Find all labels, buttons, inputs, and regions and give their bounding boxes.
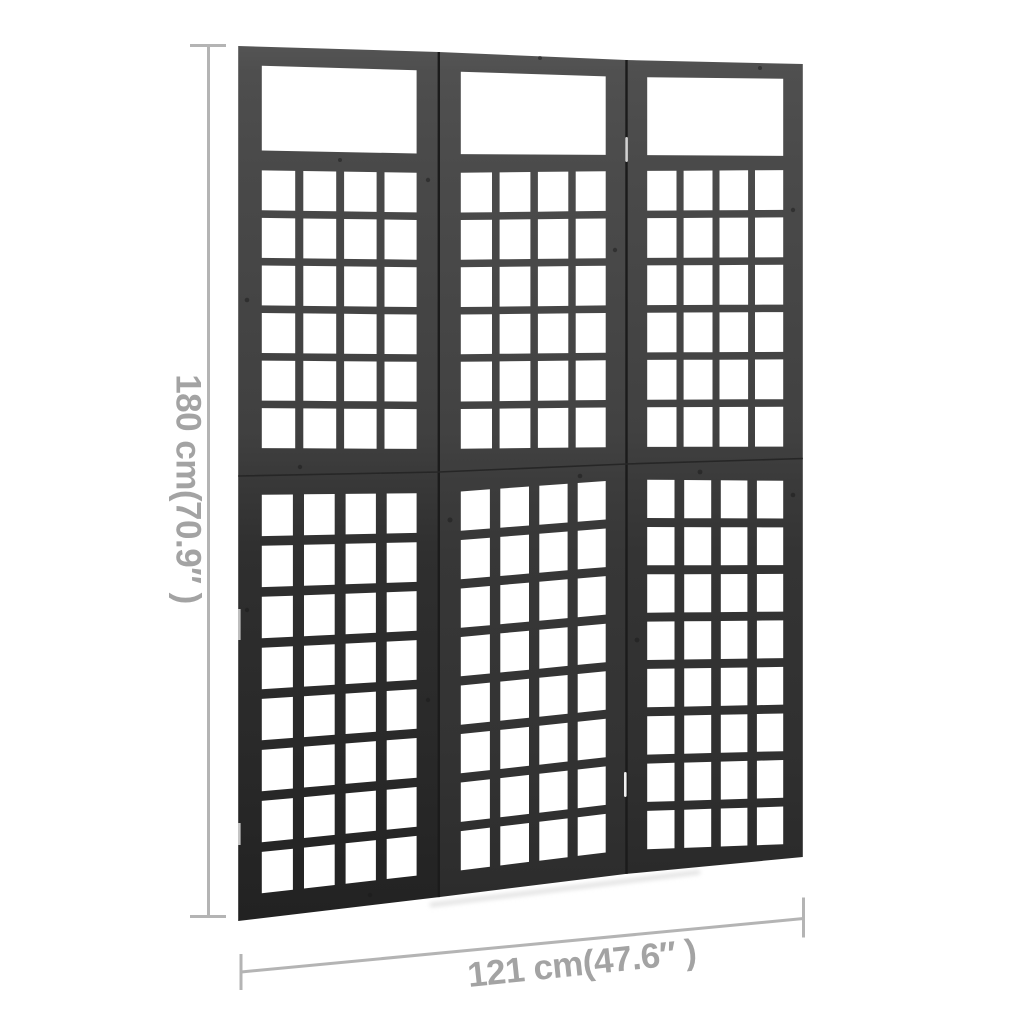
svg-text:180 cm(70.9″ ): 180 cm(70.9″ ) [169,374,208,604]
